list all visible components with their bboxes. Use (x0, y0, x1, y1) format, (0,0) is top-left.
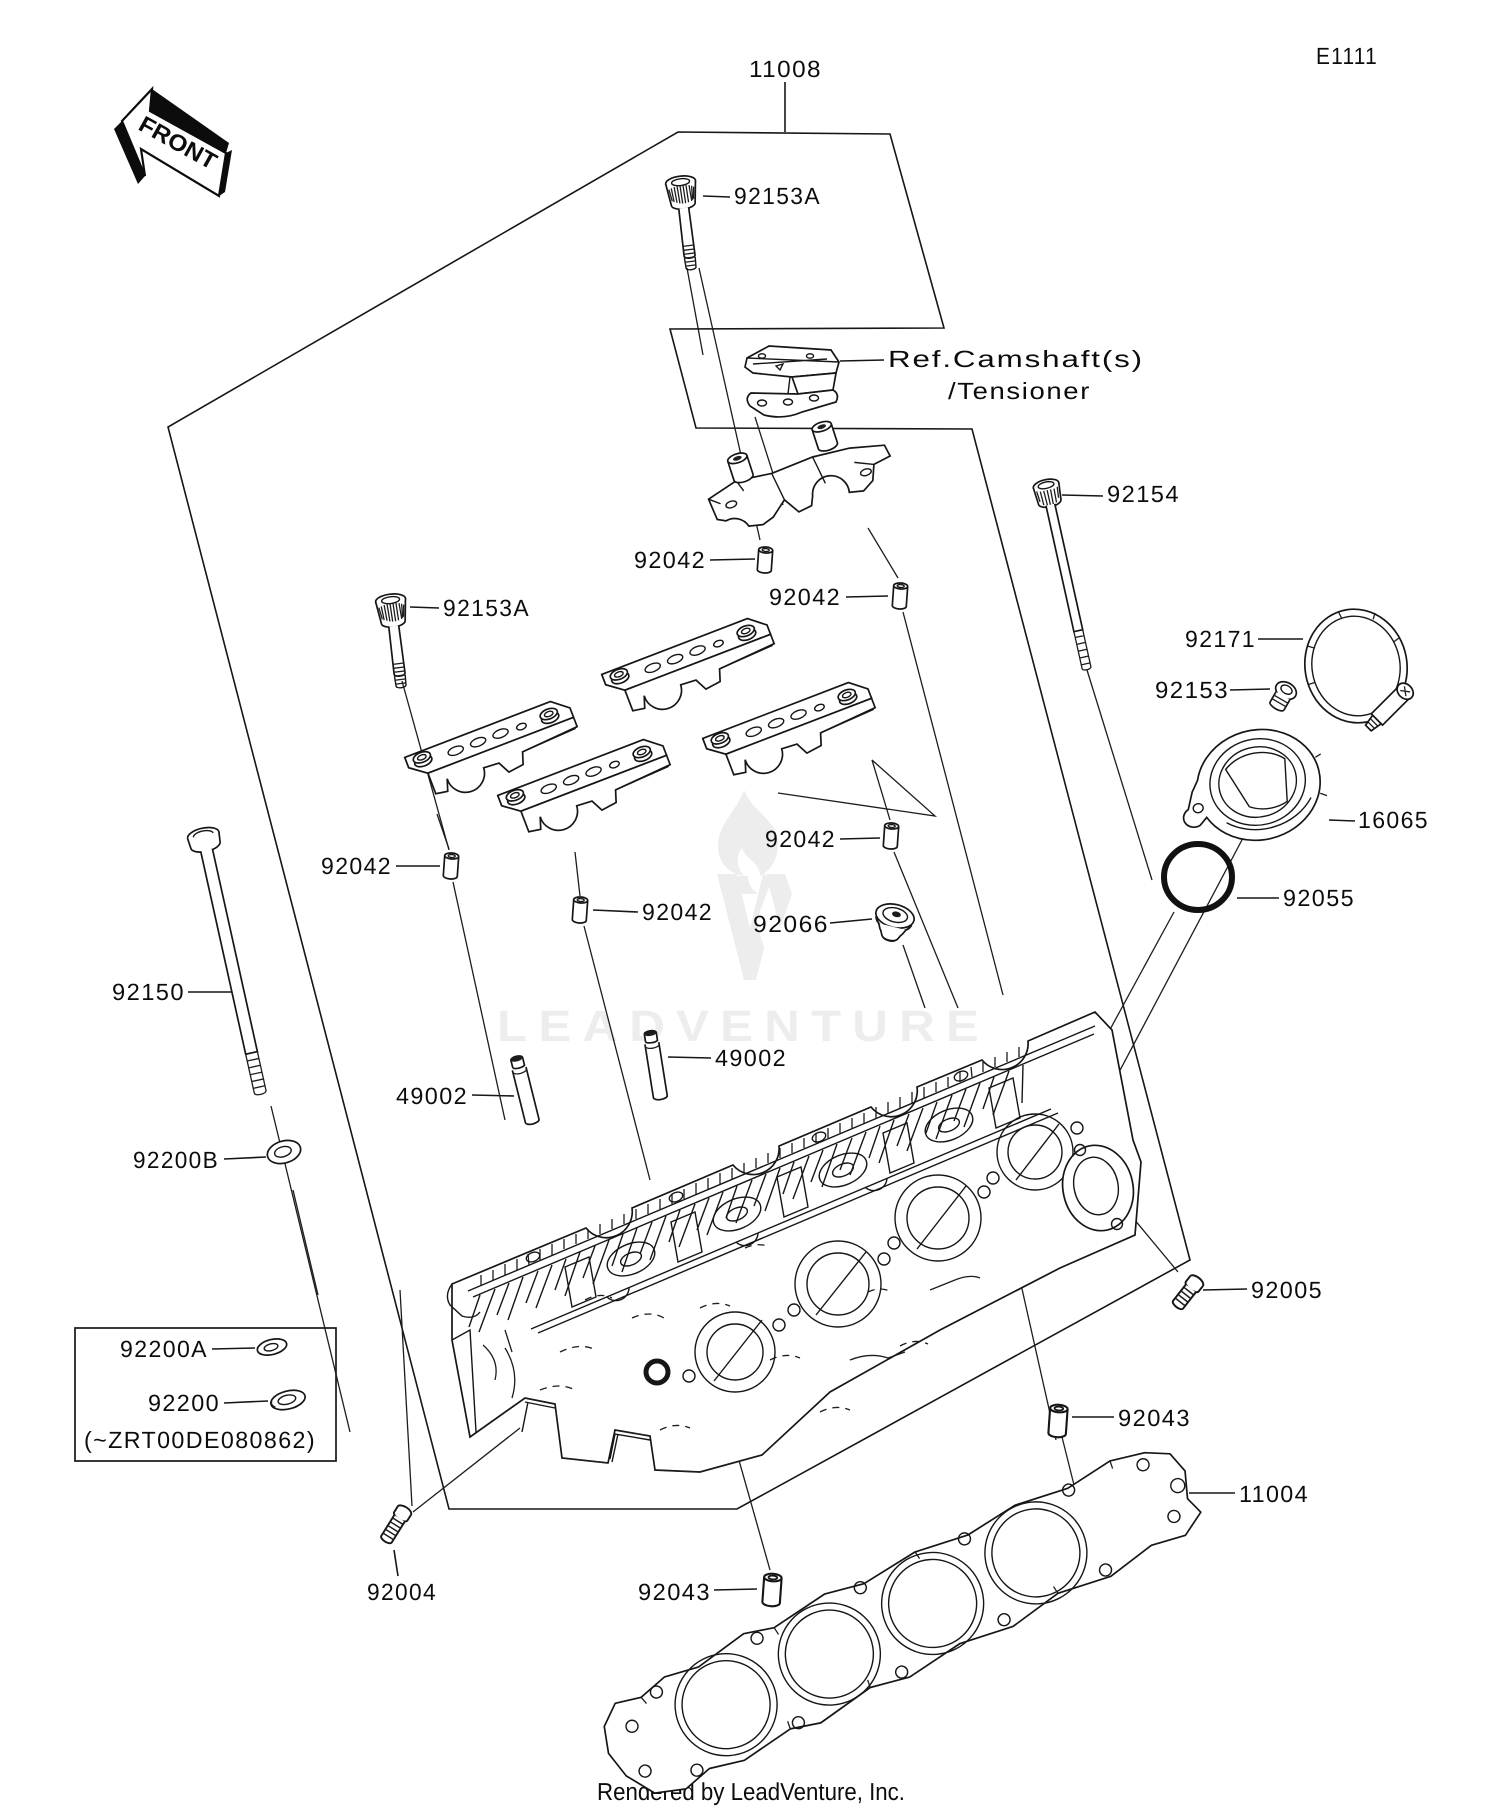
svg-text:92200: 92200 (148, 1390, 220, 1416)
svg-text:92043: 92043 (1118, 1405, 1191, 1431)
svg-text:49002: 49002 (715, 1045, 787, 1071)
svg-text:92154: 92154 (1107, 481, 1180, 507)
svg-text:92043: 92043 (638, 1579, 711, 1605)
svg-text:92042: 92042 (642, 899, 713, 925)
svg-text:49002: 49002 (396, 1083, 468, 1109)
svg-text:92004: 92004 (367, 1579, 437, 1605)
svg-text:92005: 92005 (1251, 1277, 1323, 1303)
svg-text:11008: 11008 (749, 56, 822, 82)
svg-text:E1111: E1111 (1316, 43, 1378, 69)
svg-text:92153A: 92153A (443, 595, 530, 621)
svg-text:92042: 92042 (769, 584, 841, 610)
svg-text:92171: 92171 (1185, 626, 1256, 652)
svg-text:92153A: 92153A (734, 183, 821, 209)
svg-text:92042: 92042 (321, 853, 392, 879)
svg-text:92200B: 92200B (133, 1147, 219, 1173)
svg-text:/Tensioner: /Tensioner (948, 378, 1091, 404)
svg-text:92066: 92066 (753, 911, 829, 937)
svg-text:92042: 92042 (765, 826, 836, 852)
svg-text:16065: 16065 (1358, 807, 1429, 833)
svg-text:Ref.Camshaft(s): Ref.Camshaft(s) (888, 346, 1144, 372)
svg-text:92153: 92153 (1155, 677, 1229, 703)
svg-text:92200A: 92200A (120, 1336, 208, 1362)
svg-text:11004: 11004 (1239, 1481, 1309, 1507)
svg-text:92055: 92055 (1283, 885, 1355, 911)
svg-text:92042: 92042 (634, 547, 706, 573)
svg-text:(~ZRT00DE080862): (~ZRT00DE080862) (84, 1427, 316, 1453)
svg-text:LEADVENTURE: LEADVENTURE (497, 1002, 990, 1051)
svg-text:92150: 92150 (112, 979, 185, 1005)
